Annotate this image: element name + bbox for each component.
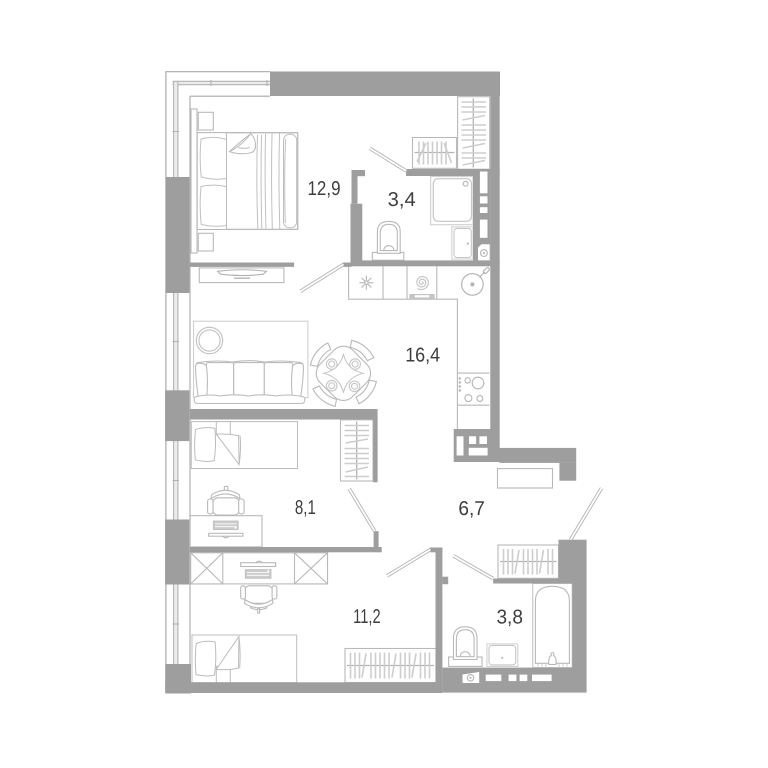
svg-text:12,9: 12,9 (308, 178, 341, 200)
svg-text:11,2: 11,2 (353, 606, 381, 628)
svg-text:6,7: 6,7 (458, 498, 485, 520)
svg-text:16,4: 16,4 (405, 345, 440, 367)
svg-text:8,1: 8,1 (295, 497, 316, 519)
svg-text:3,4: 3,4 (388, 189, 416, 211)
svg-text:3,8: 3,8 (496, 606, 523, 628)
